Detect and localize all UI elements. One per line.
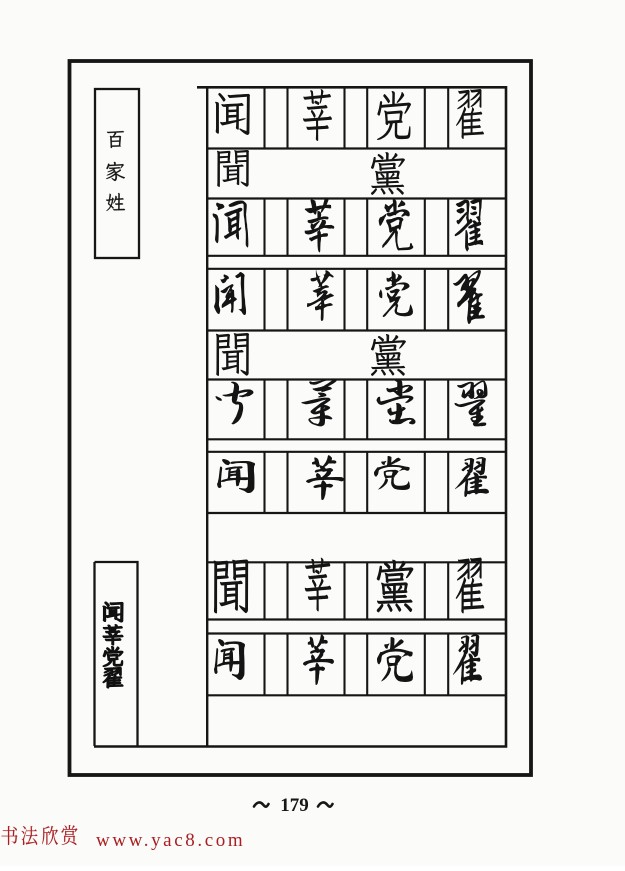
svg-text:179: 179: [280, 795, 309, 816]
svg-text:www.yac8.com: www.yac8.com: [96, 830, 245, 851]
